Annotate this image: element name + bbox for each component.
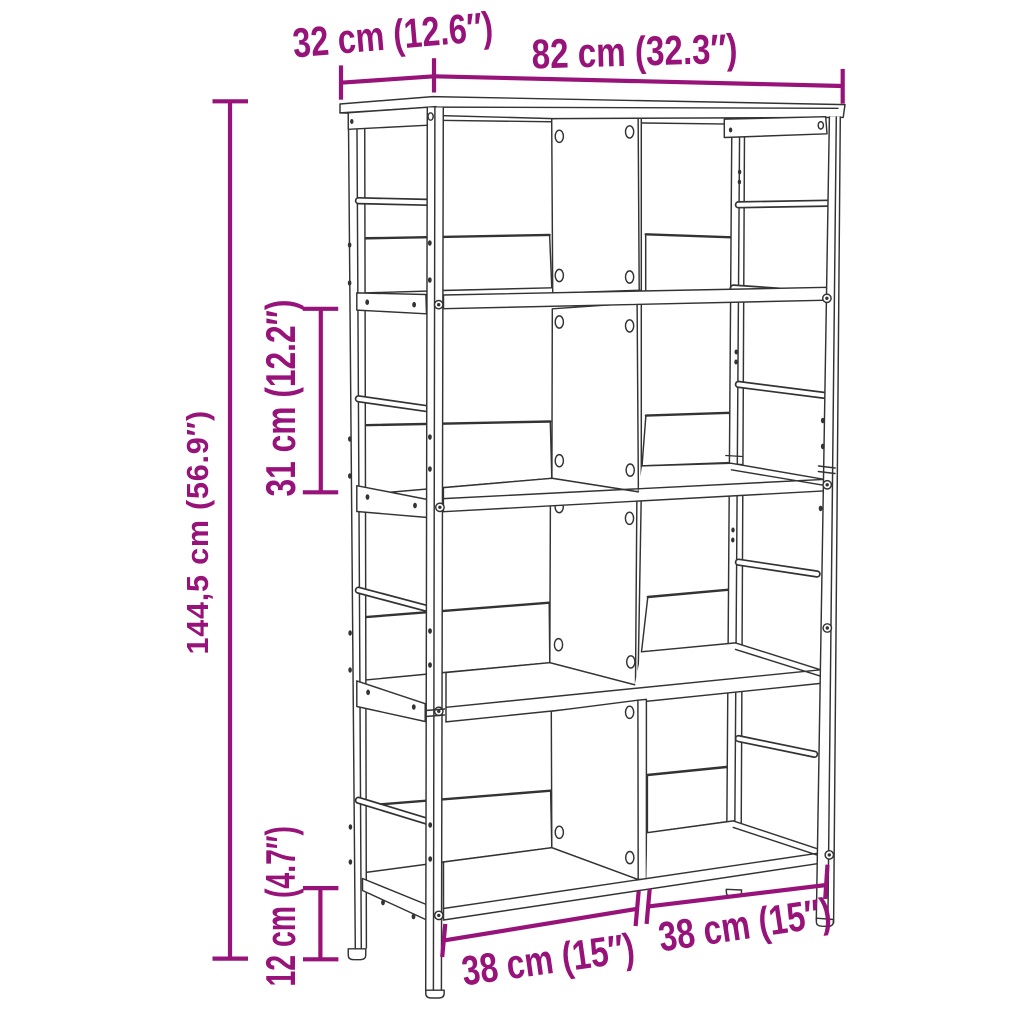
svg-text:31 cm (12.2″): 31 cm (12.2″) <box>258 300 304 497</box>
svg-text:144,5 cm (56.9″): 144,5 cm (56.9″) <box>181 410 215 654</box>
svg-text:82 cm (32.3″): 82 cm (32.3″) <box>531 25 738 77</box>
svg-text:12 cm (4.7″): 12 cm (4.7″) <box>258 826 305 986</box>
